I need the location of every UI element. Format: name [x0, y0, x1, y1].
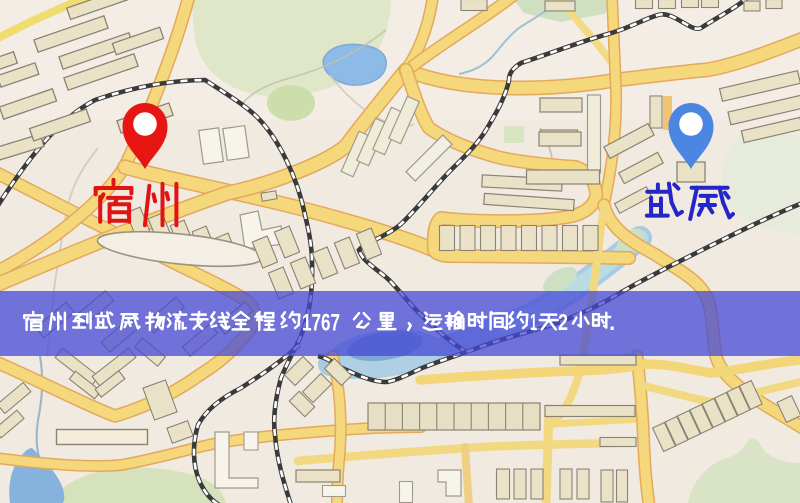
svg-text:2: 2: [558, 309, 568, 335]
svg-text:1767: 1767: [302, 310, 340, 337]
svg-text:.: .: [609, 309, 615, 335]
svg-text:1: 1: [530, 309, 537, 335]
